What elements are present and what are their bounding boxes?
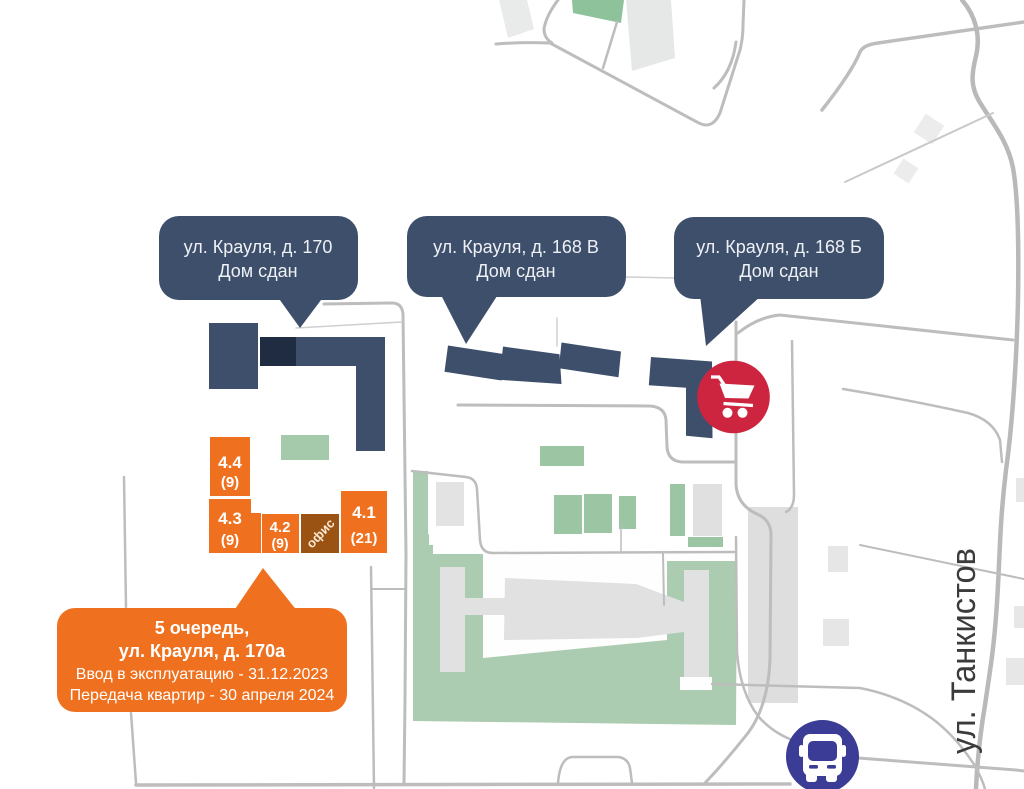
- svg-text:ул. Танкистов: ул. Танкистов: [945, 548, 983, 754]
- svg-text:4.1: 4.1: [352, 503, 376, 522]
- svg-text:(21): (21): [351, 530, 378, 547]
- svg-text:4.3: 4.3: [218, 509, 242, 528]
- svg-text:5 очередь,: 5 очередь,: [155, 618, 250, 638]
- svg-text:(9): (9): [221, 474, 239, 491]
- svg-text:ул. Крауля, д. 168 Б: ул. Крауля, д. 168 Б: [696, 237, 862, 257]
- svg-text:ул. Крауля, д. 168 В: ул. Крауля, д. 168 В: [433, 237, 599, 257]
- svg-text:ул. Крауля, д. 170: ул. Крауля, д. 170: [184, 237, 333, 257]
- svg-text:4.2: 4.2: [270, 519, 291, 536]
- svg-text:Дом сдан: Дом сдан: [739, 261, 818, 281]
- svg-text:Передача квартир - 30 апреля 2: Передача квартир - 30 апреля 2024: [70, 687, 335, 704]
- svg-text:4.4: 4.4: [218, 453, 242, 472]
- svg-text:Дом сдан: Дом сдан: [218, 261, 297, 281]
- svg-text:Дом сдан: Дом сдан: [476, 261, 555, 281]
- svg-text:(9): (9): [221, 532, 239, 549]
- svg-text:(9): (9): [271, 535, 288, 551]
- svg-text:ул. Крауля, д. 170а: ул. Крауля, д. 170а: [119, 641, 286, 661]
- svg-text:Ввод в эксплуатацию - 31.12.20: Ввод в эксплуатацию - 31.12.2023: [76, 666, 329, 683]
